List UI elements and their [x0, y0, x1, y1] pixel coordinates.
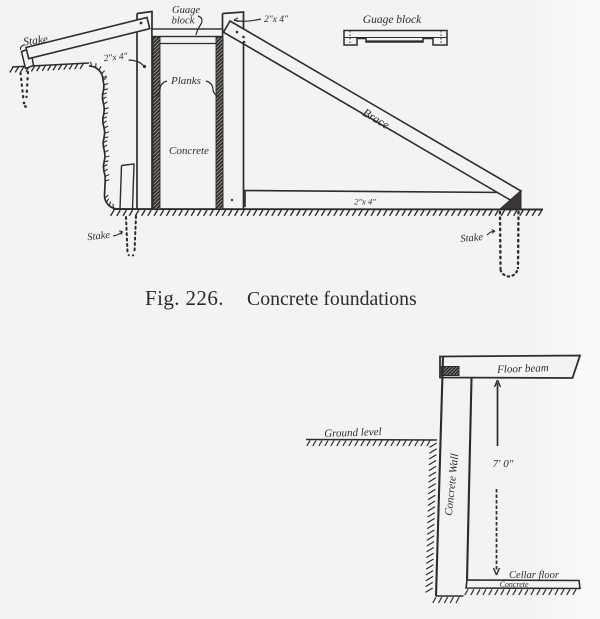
svg-text:Ground level: Ground level	[324, 426, 382, 440]
svg-text:7′ 0″: 7′ 0″	[493, 458, 514, 470]
svg-text:Guage: Guage	[172, 5, 200, 16]
svg-text:Fig. 226.: Fig. 226.	[145, 286, 224, 310]
svg-text:2″x 4″: 2″x 4″	[264, 15, 289, 25]
svg-text:block: block	[172, 16, 195, 27]
svg-text:Concrete foundations: Concrete foundations	[247, 288, 417, 310]
svg-text:Concrete: Concrete	[169, 145, 209, 157]
svg-text:2″x 4″: 2″x 4″	[103, 52, 129, 65]
svg-text:Stake: Stake	[460, 232, 484, 245]
svg-text:Stake: Stake	[87, 230, 111, 243]
svg-text:2″x 4″: 2″x 4″	[354, 197, 376, 207]
svg-text:Floor beam: Floor beam	[496, 362, 549, 376]
svg-text:Concrete Wall: Concrete Wall	[443, 453, 461, 516]
svg-text:Planks: Planks	[170, 75, 201, 87]
svg-text:Guage block: Guage block	[363, 14, 422, 26]
svg-text:Concrete: Concrete	[499, 580, 528, 589]
